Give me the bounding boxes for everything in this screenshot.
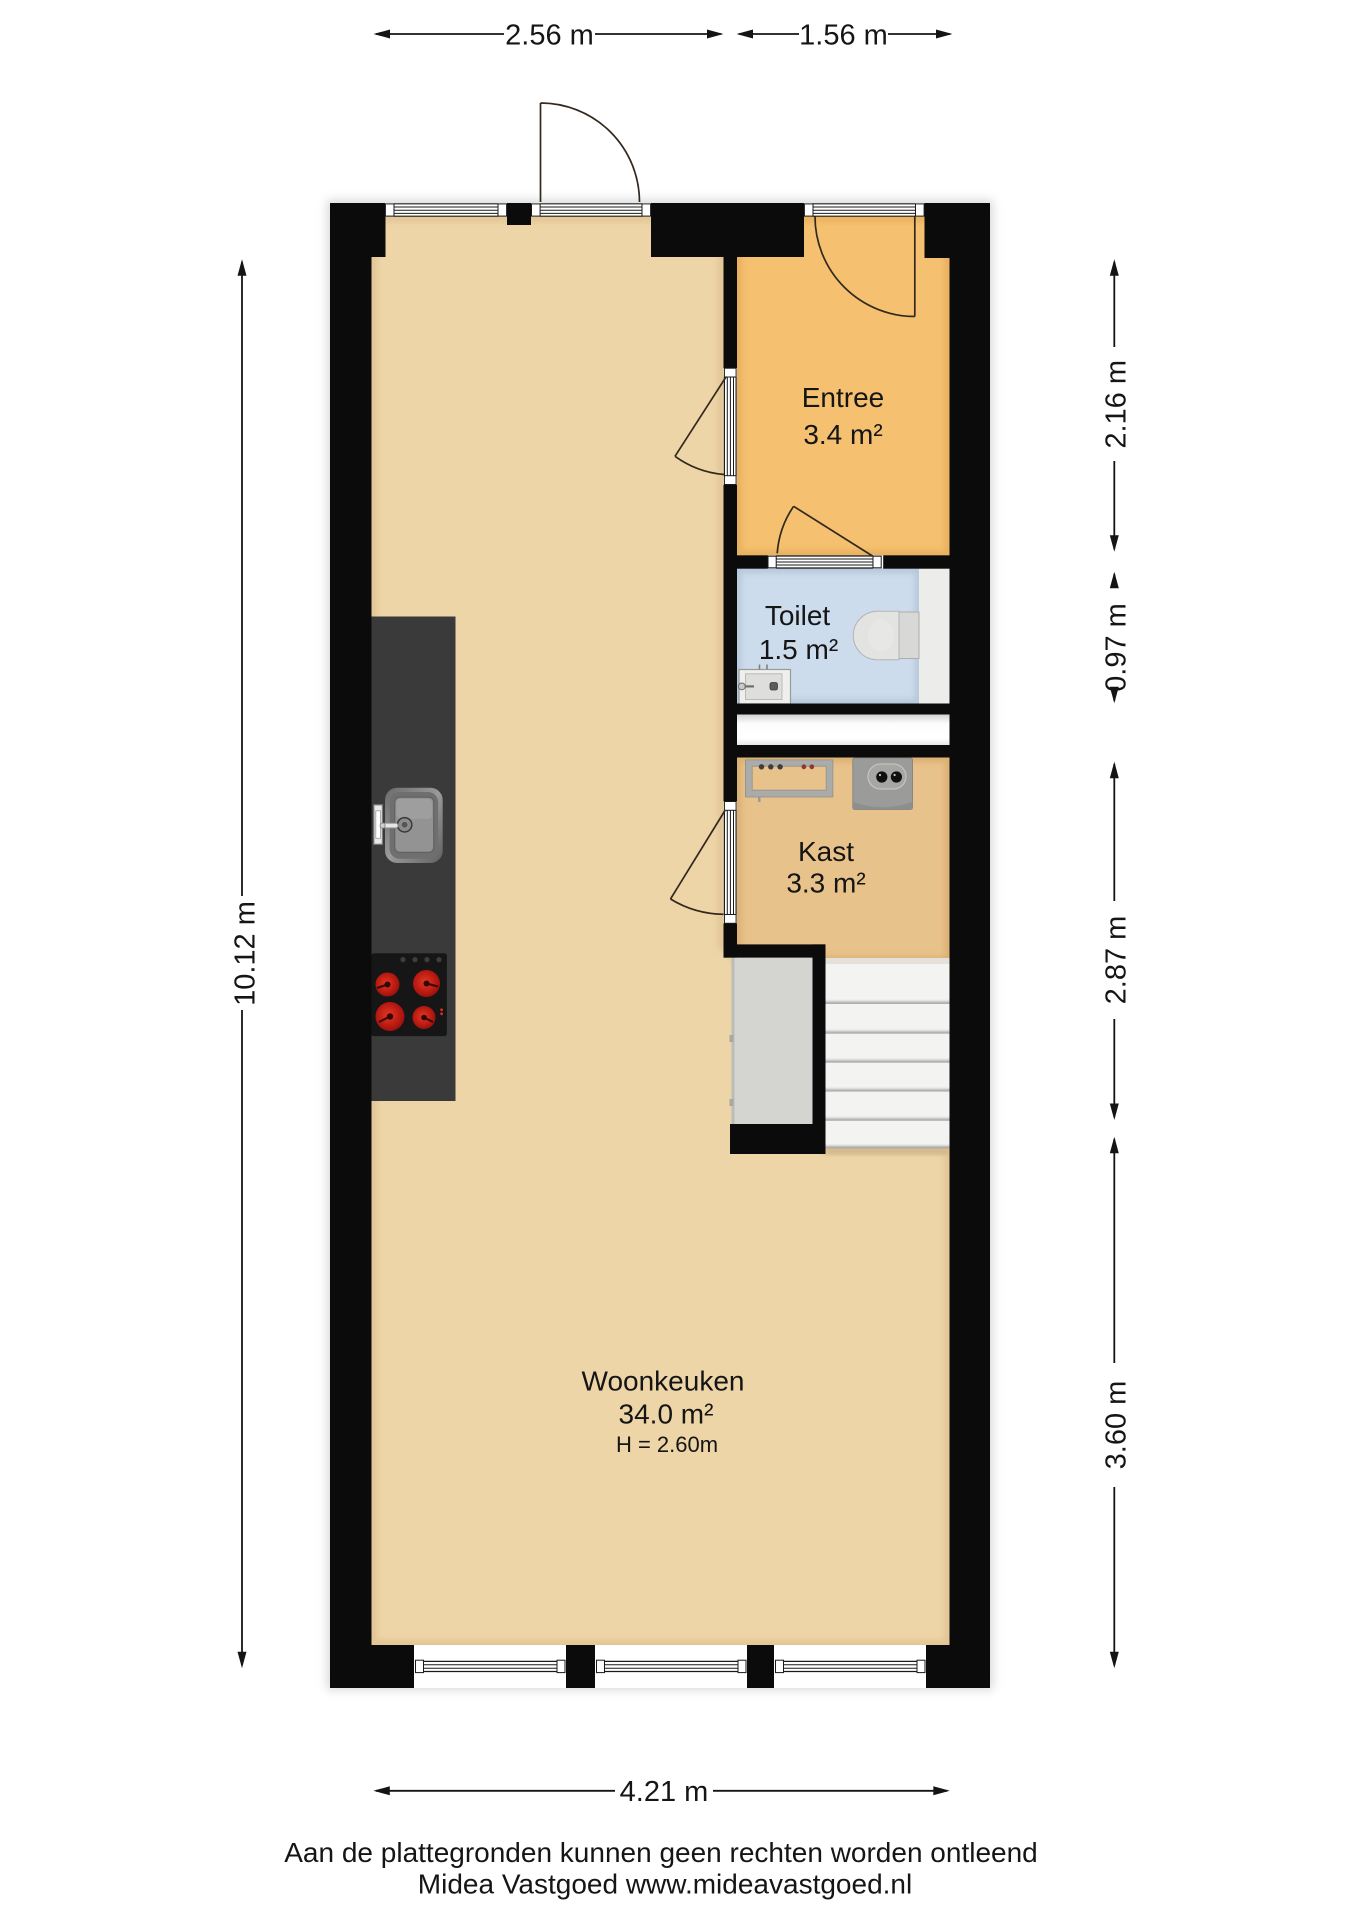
- svg-text:3.4 m²: 3.4 m²: [803, 419, 882, 450]
- svg-text:4.21 m: 4.21 m: [620, 1776, 709, 1808]
- svg-text:Entree: Entree: [802, 382, 885, 413]
- svg-text:1.5 m²: 1.5 m²: [759, 634, 838, 665]
- svg-text:34.0 m²: 34.0 m²: [619, 1399, 714, 1430]
- svg-text:2.56 m: 2.56 m: [505, 19, 594, 51]
- svg-text:3.3 m²: 3.3 m²: [786, 868, 865, 899]
- svg-text:Kast: Kast: [798, 836, 854, 867]
- svg-text:2.16 m: 2.16 m: [1101, 360, 1133, 449]
- svg-text:Woonkeuken: Woonkeuken: [582, 1366, 745, 1397]
- svg-text:0.97 m: 0.97 m: [1101, 603, 1133, 692]
- svg-text:Toilet: Toilet: [765, 600, 831, 631]
- svg-text:Midea Vastgoed www.mideavastgo: Midea Vastgoed www.mideavastgoed.nl: [418, 1869, 912, 1900]
- svg-text:2.87 m: 2.87 m: [1101, 916, 1133, 1005]
- svg-text:10.12 m: 10.12 m: [230, 901, 262, 1006]
- svg-text:1.56 m: 1.56 m: [799, 19, 888, 51]
- svg-text:H = 2.60m: H = 2.60m: [616, 1432, 718, 1457]
- svg-text:3.60 m: 3.60 m: [1101, 1381, 1133, 1470]
- svg-text:Aan de plattegronden kunnen ge: Aan de plattegronden kunnen geen rechten…: [284, 1837, 1037, 1868]
